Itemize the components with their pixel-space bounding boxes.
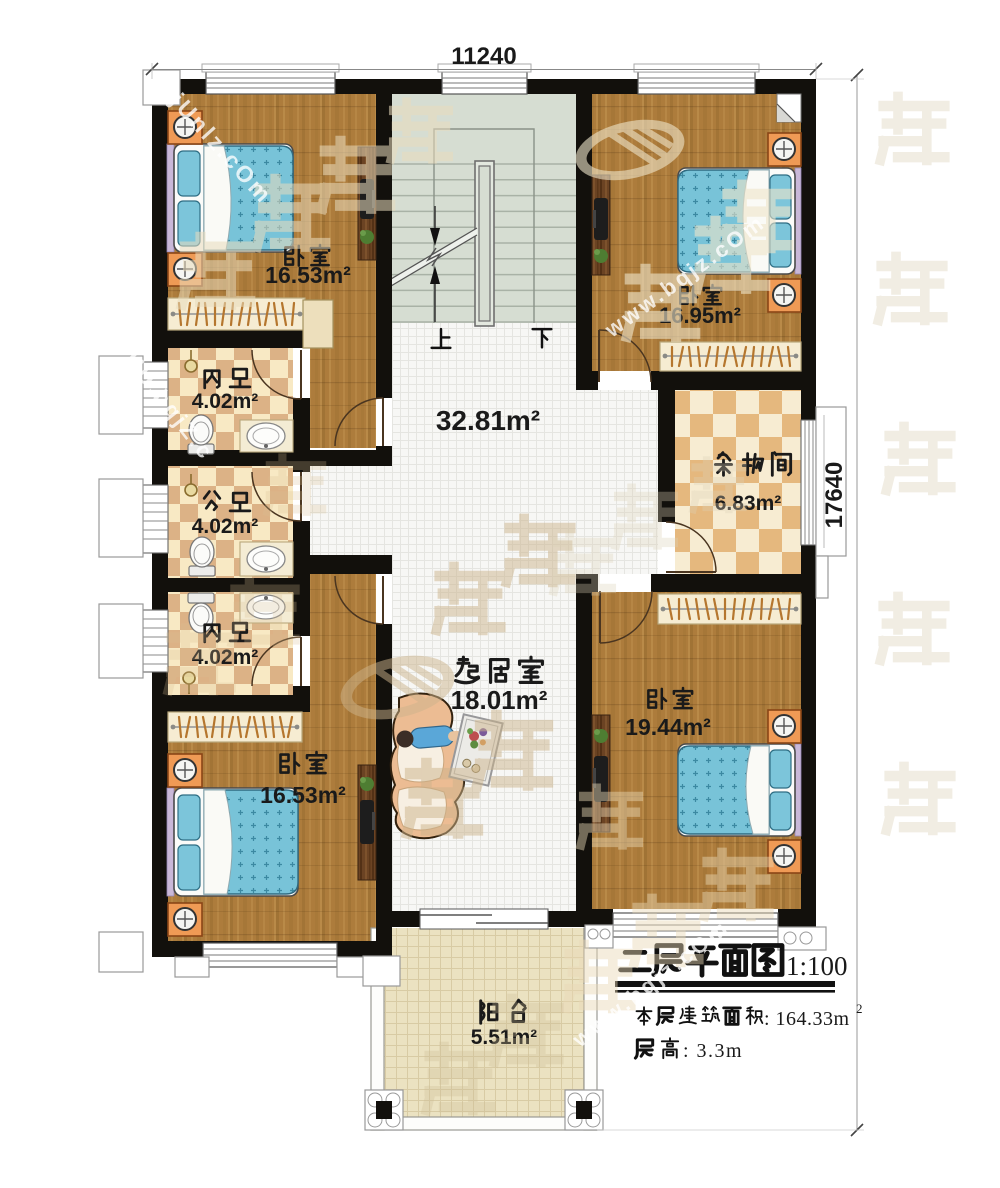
svg-text:11240: 11240 [451, 43, 516, 70]
svg-text:: 164.33m: : 164.33m [764, 1008, 850, 1030]
svg-text:1:100: 1:100 [786, 951, 848, 981]
svg-text:16.53m²: 16.53m² [260, 782, 346, 808]
svg-text:16.53m²: 16.53m² [265, 262, 351, 288]
svg-text:19.44m²: 19.44m² [625, 714, 711, 740]
svg-text:32.81m²: 32.81m² [436, 405, 540, 436]
svg-text:4.02m²: 4.02m² [192, 515, 259, 538]
svg-text:4.02m²: 4.02m² [192, 390, 259, 413]
svg-text:: 3.3m: : 3.3m [683, 1040, 743, 1062]
svg-text:2: 2 [856, 1001, 864, 1016]
svg-text:17640: 17640 [821, 462, 848, 529]
